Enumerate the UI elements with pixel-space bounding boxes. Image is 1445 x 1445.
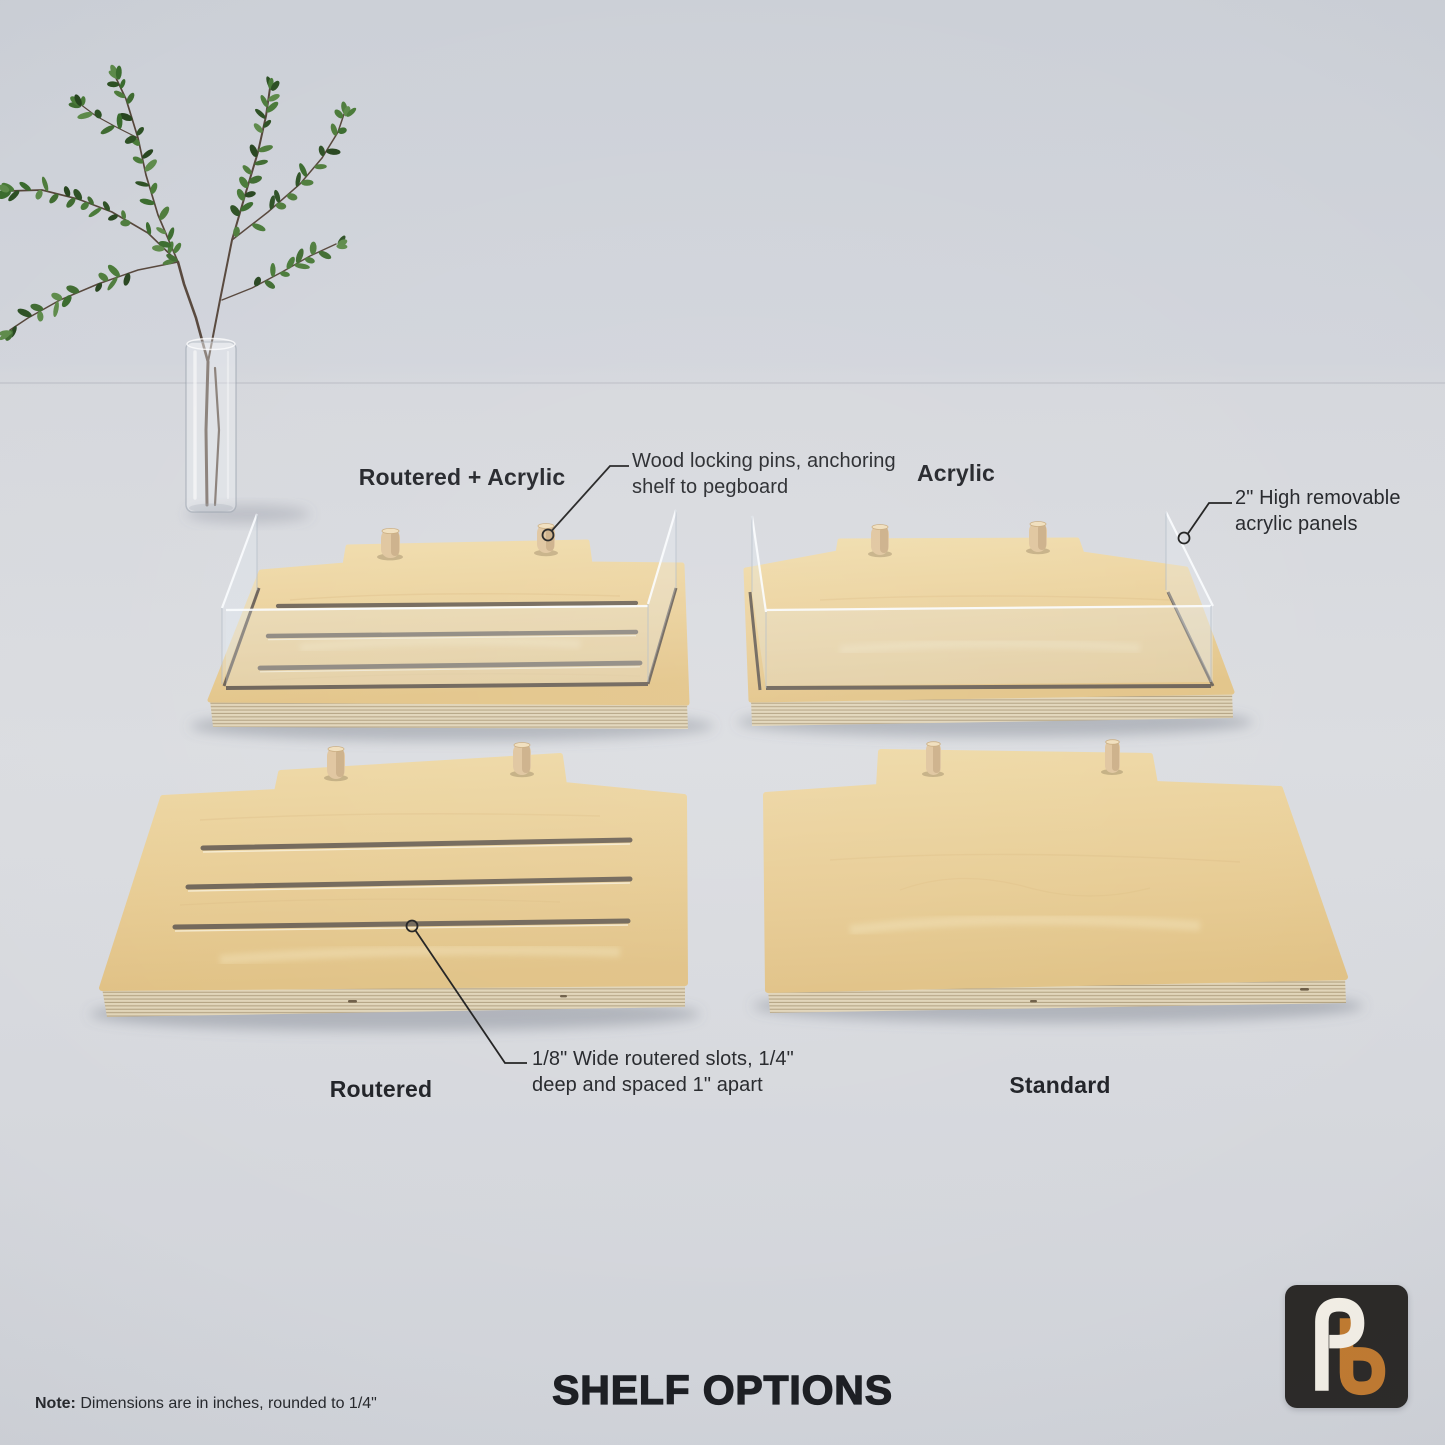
label-routered: Routered: [330, 1076, 433, 1103]
plant-leaves: [0, 64, 358, 343]
shelf-standard: [753, 740, 1363, 1023]
vase: [186, 339, 236, 513]
brand-logo-badge: [1285, 1285, 1408, 1408]
note-label: Note:: [35, 1395, 76, 1412]
plant-branches: [8, 78, 344, 505]
note-text: Dimensions are in inches, rounded to 1/4…: [76, 1395, 377, 1412]
label-routered-acrylic: Routered + Acrylic: [359, 464, 566, 491]
wood-pin-right: [510, 743, 534, 778]
label-acrylic: Acrylic: [917, 460, 995, 487]
callout-pins: Wood locking pins, anchoring shelf to pe…: [632, 448, 912, 500]
shelf-routered: [90, 743, 700, 1032]
wood-pin-left: [868, 525, 892, 558]
shelf-top-face: [766, 752, 1345, 990]
label-standard: Standard: [1009, 1072, 1110, 1099]
callout-slots: 1/8" Wide routered slots, 1/4" deep and …: [532, 1046, 832, 1098]
product-scene: Routered + Acrylic Acrylic Routered Stan…: [0, 0, 1445, 1445]
callout-panels: 2" High removable acrylic panels: [1235, 485, 1420, 537]
acrylic-panel-front: [766, 606, 1211, 686]
plant: [0, 64, 358, 523]
shelf-acrylic: [737, 512, 1253, 737]
wood-pin-right: [1026, 522, 1050, 555]
scene-graphics: [0, 0, 1445, 1445]
panels-callout-leader: [1179, 503, 1233, 544]
shelf-routered-acrylic: [190, 510, 714, 741]
wood-pin-left: [324, 747, 348, 782]
pb-monogram-icon: [1285, 1285, 1408, 1408]
acrylic-panel-front: [226, 606, 648, 686]
dimension-note: Note: Dimensions are in inches, rounded …: [35, 1395, 377, 1413]
